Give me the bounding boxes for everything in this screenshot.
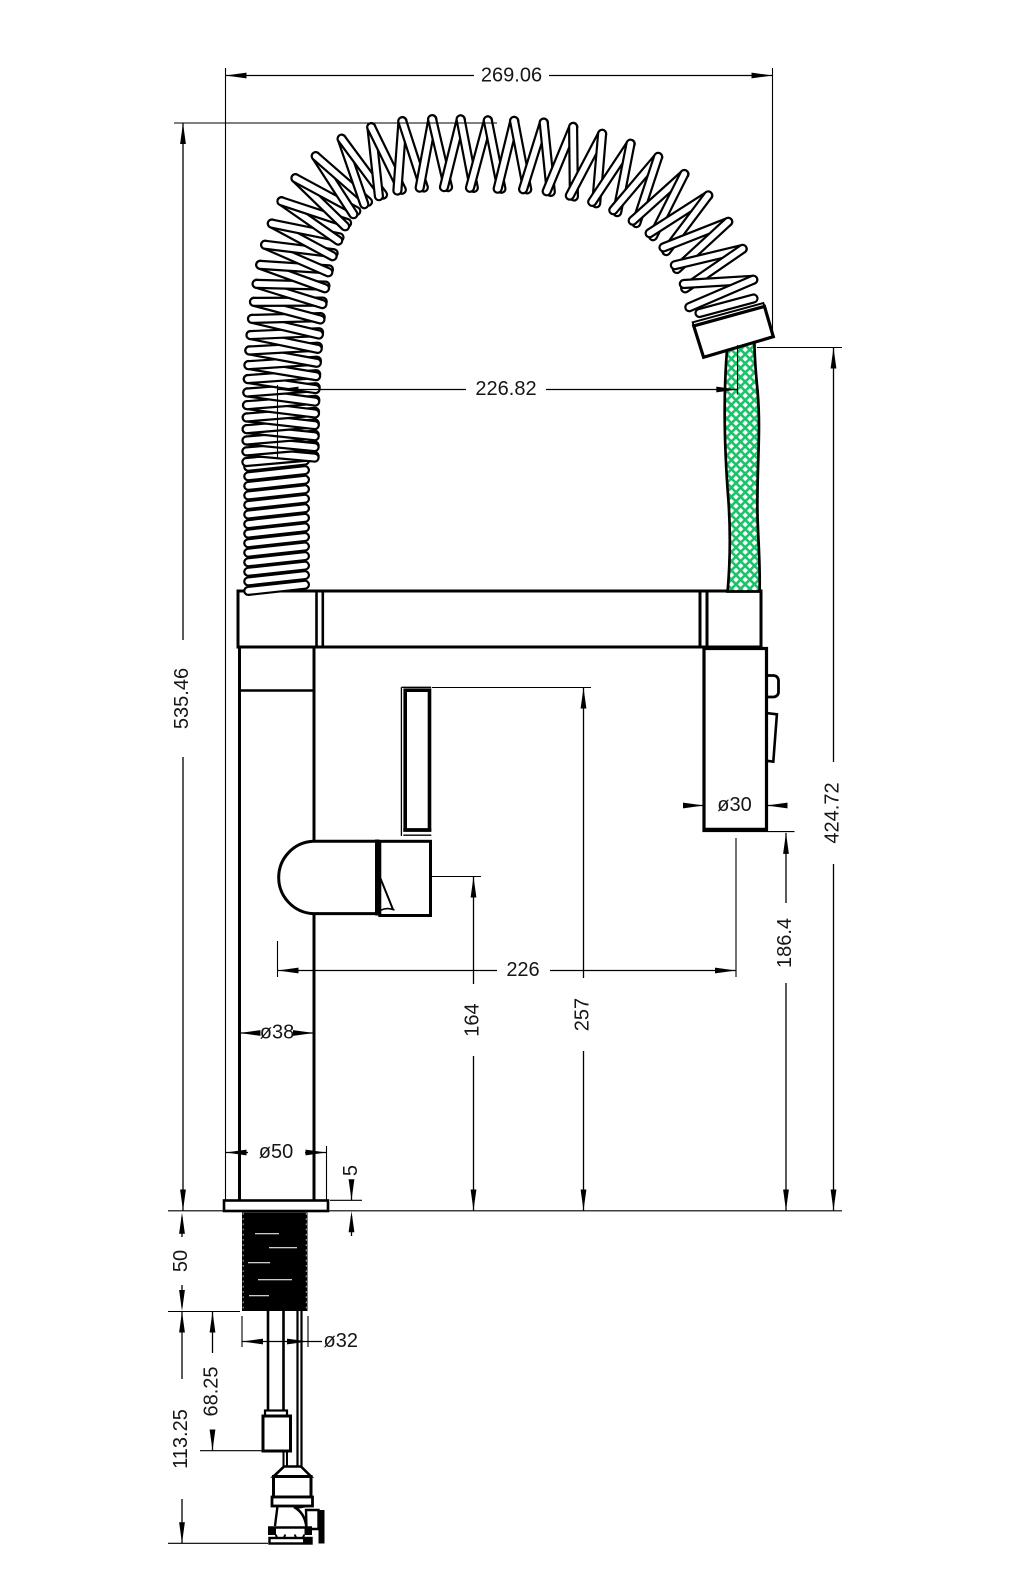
svg-text:226: 226	[506, 959, 539, 981]
svg-text:186.4: 186.4	[774, 918, 796, 968]
svg-text:113.25: 113.25	[170, 1409, 192, 1469]
svg-text:535.46: 535.46	[171, 668, 193, 729]
svg-text:424.72: 424.72	[822, 782, 844, 843]
svg-text:164: 164	[462, 1003, 484, 1036]
svg-text:50: 50	[170, 1250, 192, 1272]
svg-text:257: 257	[572, 998, 594, 1031]
svg-text:68.25: 68.25	[201, 1366, 223, 1416]
svg-text:269.06: 269.06	[481, 65, 542, 87]
svg-text:5: 5	[340, 1165, 362, 1176]
svg-text:ø50: ø50	[259, 1141, 293, 1163]
svg-text:ø38: ø38	[260, 1022, 294, 1044]
svg-text:ø32: ø32	[324, 1330, 358, 1352]
svg-text:ø30: ø30	[717, 794, 751, 816]
svg-text:226.82: 226.82	[475, 378, 536, 400]
